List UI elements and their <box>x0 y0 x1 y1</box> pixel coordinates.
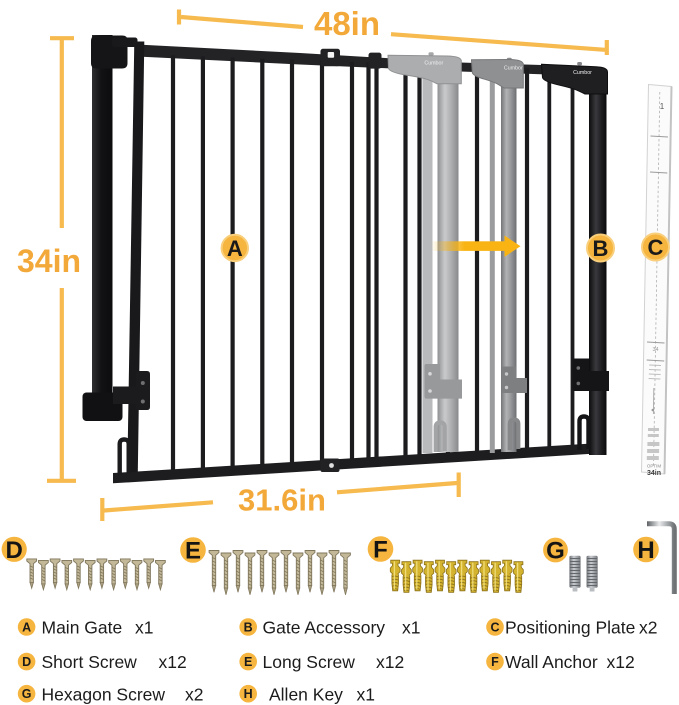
svg-text:34in: 34in <box>17 243 81 279</box>
svg-text:H: H <box>637 537 654 564</box>
svg-text:B: B <box>244 621 253 635</box>
svg-text:48in: 48in <box>314 5 380 42</box>
svg-text:Long Screw: Long Screw <box>263 652 356 672</box>
svg-text:A: A <box>22 621 31 635</box>
svg-text:Main Gate: Main Gate <box>42 618 123 638</box>
svg-text:F: F <box>373 537 388 564</box>
svg-text:34in: 34in <box>647 470 661 477</box>
svg-text:H: H <box>244 687 253 701</box>
svg-text:C: C <box>490 621 499 635</box>
svg-text:C: C <box>648 235 664 260</box>
svg-text:Wall Anchor: Wall Anchor <box>505 652 598 672</box>
svg-text:Positioning Plate: Positioning Plate <box>505 618 635 638</box>
svg-text:G: G <box>546 538 565 565</box>
svg-text:OPTIM: OPTIM <box>647 464 662 469</box>
svg-text:Short Screw: Short Screw <box>42 652 138 672</box>
svg-text:x1: x1 <box>402 618 420 638</box>
svg-text:x1: x1 <box>135 618 153 638</box>
svg-text:x12: x12 <box>376 652 404 672</box>
svg-text:1: 1 <box>660 102 665 111</box>
svg-text:Hexagon Screw: Hexagon Screw <box>42 684 166 704</box>
svg-text:31.6in: 31.6in <box>238 483 326 518</box>
svg-text:Cumbor: Cumbor <box>424 61 443 67</box>
svg-text:x12: x12 <box>159 652 187 672</box>
svg-text:D: D <box>22 655 31 669</box>
svg-text:Cumbor: Cumbor <box>504 66 523 72</box>
svg-text:x1: x1 <box>357 684 375 704</box>
svg-text:D: D <box>6 537 23 564</box>
svg-text:x12: x12 <box>607 652 635 672</box>
svg-text:F: F <box>491 655 499 669</box>
svg-text:E: E <box>244 655 252 669</box>
svg-text:E: E <box>185 538 201 565</box>
svg-text:G: G <box>22 687 32 701</box>
svg-text:Gate Accessory: Gate Accessory <box>263 618 386 638</box>
svg-text:x2: x2 <box>185 684 203 704</box>
svg-text:x2: x2 <box>639 618 657 638</box>
svg-text:34: 34 <box>652 347 658 353</box>
svg-text:A: A <box>227 236 243 261</box>
svg-text:B: B <box>593 236 609 261</box>
svg-text:Allen Key: Allen Key <box>269 684 343 704</box>
svg-text:Cumbor: Cumbor <box>573 70 592 76</box>
